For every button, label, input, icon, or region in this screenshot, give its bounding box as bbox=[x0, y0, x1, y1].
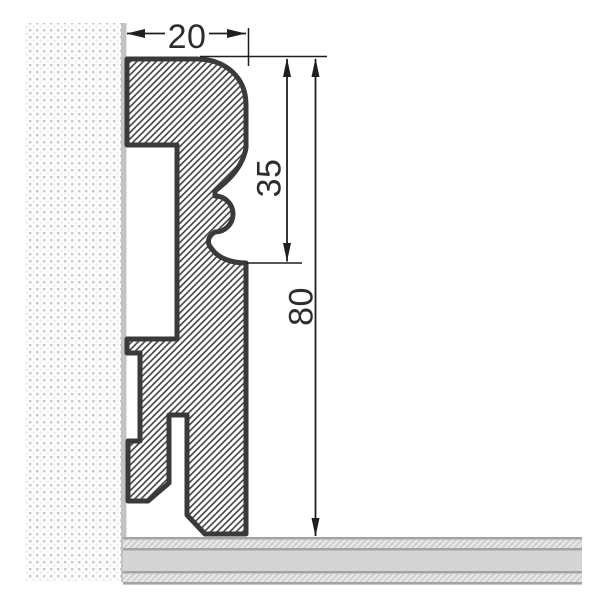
drawing-canvas: 20 35 80 bbox=[0, 0, 604, 604]
arrow-up-icon bbox=[283, 58, 291, 77]
floor-section bbox=[123, 537, 582, 585]
floor-divider-line-2 bbox=[123, 571, 582, 574]
skirting-profile-cross-section bbox=[127, 59, 246, 534]
technical-drawing: 20 35 80 bbox=[0, 0, 604, 604]
arrow-down-icon bbox=[283, 243, 291, 262]
dimension-value-20: 20 bbox=[168, 18, 207, 56]
floor-middle-layer bbox=[123, 551, 582, 571]
arrow-left-icon bbox=[127, 29, 146, 38]
floor-upper-hatch-layer bbox=[123, 540, 582, 548]
floor-top-line bbox=[123, 537, 582, 540]
floor-lower-hatch-layer bbox=[123, 574, 582, 582]
arrow-right-icon bbox=[227, 29, 246, 38]
floor-divider-line bbox=[123, 548, 582, 551]
dimension-value-80: 80 bbox=[283, 287, 321, 326]
wall-section bbox=[25, 23, 121, 582]
dimension-35: 35 bbox=[251, 58, 292, 262]
arrow-down-icon bbox=[312, 518, 320, 537]
arrow-up-icon bbox=[312, 58, 320, 77]
dimension-value-35: 35 bbox=[251, 159, 289, 198]
dimension-80: 80 bbox=[283, 58, 321, 537]
floor-bottom-line bbox=[123, 582, 582, 585]
